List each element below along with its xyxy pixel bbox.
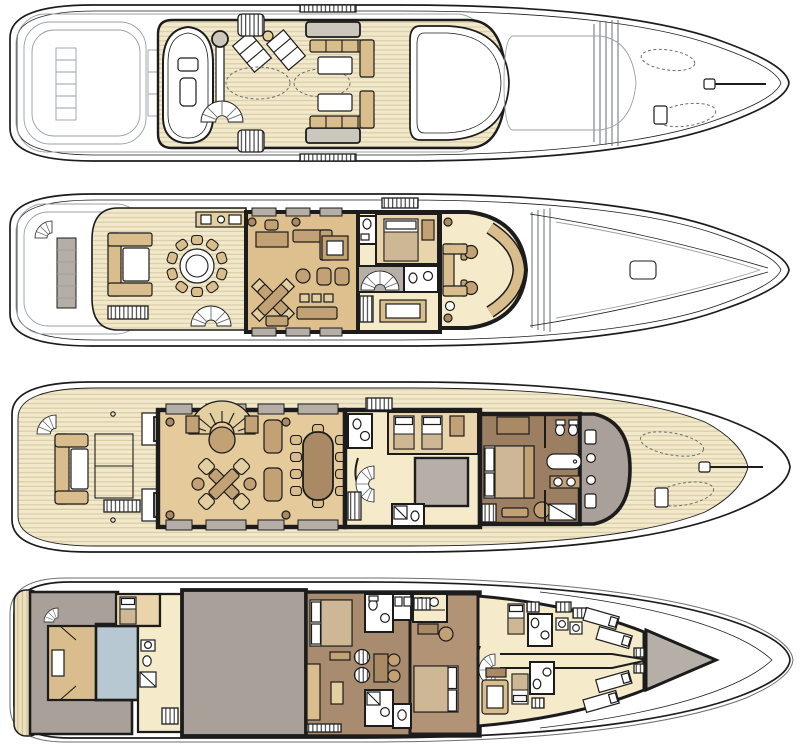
closet xyxy=(348,492,361,520)
owner-bed xyxy=(484,446,534,498)
side-deck-stairs xyxy=(382,198,418,208)
day-head xyxy=(348,414,372,448)
lower-bathroom xyxy=(392,504,424,526)
aft-deck xyxy=(92,208,246,330)
captain-quarters xyxy=(358,212,440,332)
captain-bed xyxy=(384,219,418,261)
side-stairs xyxy=(104,500,140,512)
sun-deck-plan xyxy=(0,0,800,186)
lobby-galley-block xyxy=(345,398,480,527)
crew-mess xyxy=(482,668,508,714)
stair-lobby xyxy=(358,266,404,292)
engine-room xyxy=(182,590,306,736)
aft-lounge-sofa xyxy=(108,233,152,296)
wardrobe xyxy=(482,504,496,522)
vent-hatch-top xyxy=(238,14,264,36)
owner-stateroom xyxy=(480,414,630,524)
bench xyxy=(264,468,282,501)
bench xyxy=(264,420,282,453)
guest-area xyxy=(306,592,480,736)
radar-arch xyxy=(410,26,509,140)
tender-boat xyxy=(163,27,213,143)
tv-cabinet xyxy=(497,417,529,434)
bridge-deck-plan xyxy=(0,186,800,372)
bench xyxy=(502,508,528,517)
store-room xyxy=(96,626,138,700)
main-deck-plan xyxy=(0,372,800,562)
lower-deck-plan xyxy=(0,562,800,745)
stool-round xyxy=(296,269,310,283)
sofa-aft-facing xyxy=(297,307,337,319)
side-stairs xyxy=(108,306,148,319)
day-head xyxy=(359,216,376,244)
armchair xyxy=(534,502,550,518)
anchor-windlass xyxy=(699,462,710,472)
stairs xyxy=(162,708,178,724)
main-salon xyxy=(158,401,347,530)
yacht-deck-plan-figure xyxy=(0,0,800,745)
bridge-bathroom xyxy=(404,266,438,292)
sky-lounge xyxy=(246,208,358,336)
crew-cabin-aft xyxy=(116,594,160,626)
vent-hatch-bottom xyxy=(238,130,264,152)
captain-wardrobe xyxy=(422,220,434,240)
side-deck-stairs xyxy=(366,398,392,410)
closet xyxy=(360,296,373,322)
twin-guest-cabin xyxy=(388,412,478,454)
pantry xyxy=(415,458,468,506)
